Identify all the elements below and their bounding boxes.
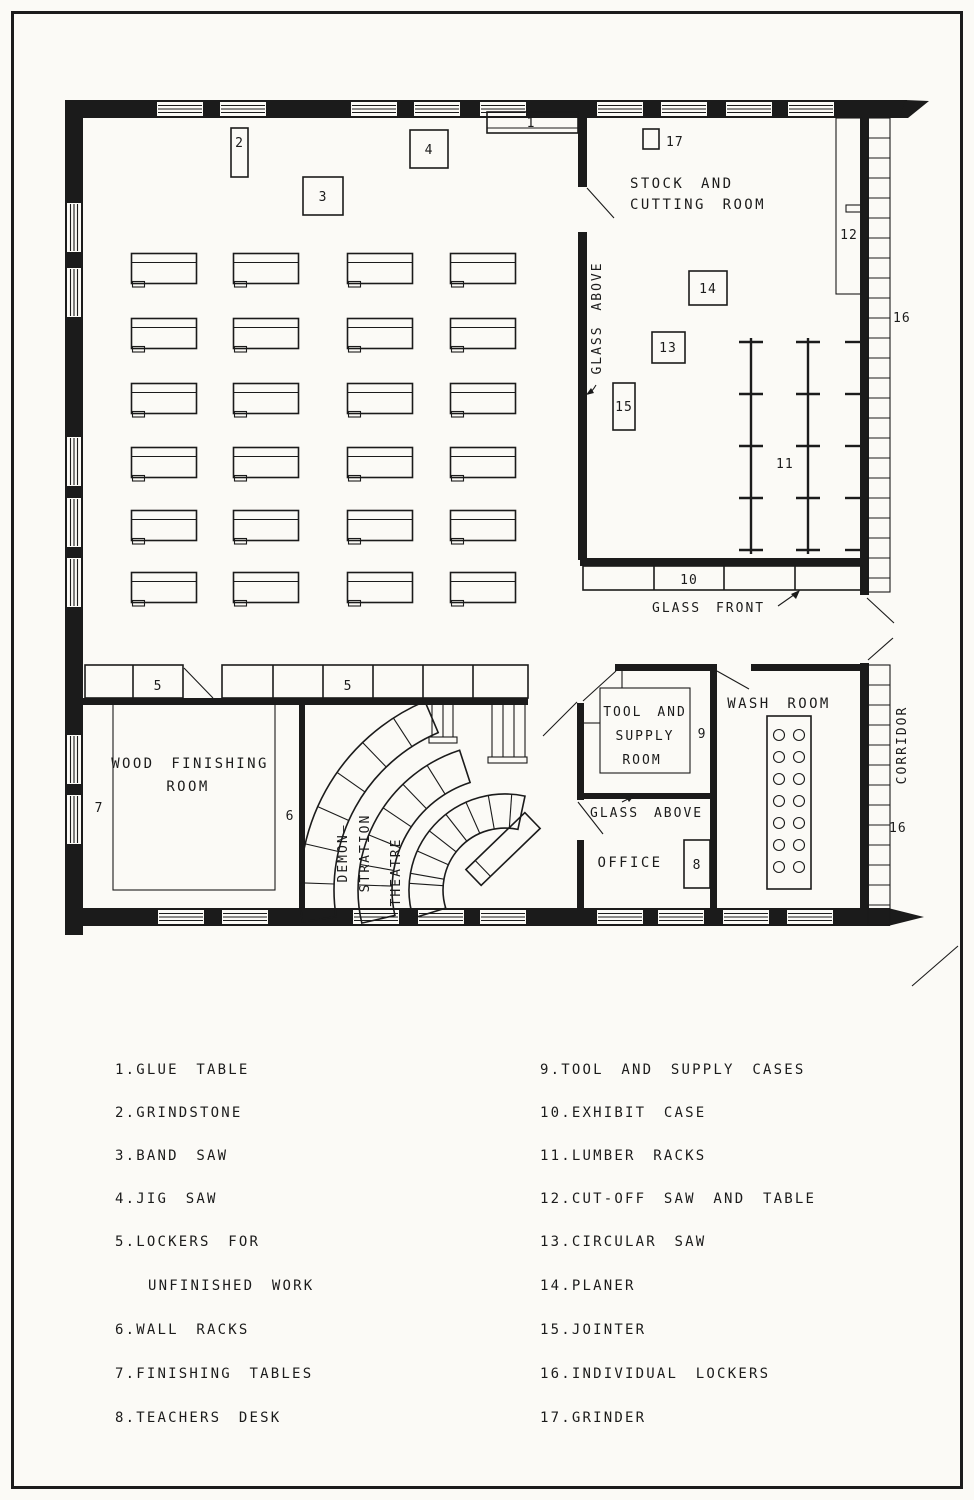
marker-5b: 5 (344, 679, 353, 694)
stock-partition-upper (578, 118, 587, 187)
stock-room-bottom-wall (580, 558, 866, 566)
marker-5a: 5 (154, 679, 163, 694)
cut-off-saw-table: 12 (836, 118, 862, 294)
workbench (132, 573, 197, 607)
marker-15: 15 (615, 400, 633, 415)
glass-above-vertical-label: GLASS ABOVE (590, 261, 605, 374)
workbench (348, 573, 413, 607)
stock-cutting-room: 17 STOCK AND CUTTING ROOM 14 13 15 12 (583, 118, 862, 616)
workbench (234, 254, 299, 288)
legend-item: 5.LOCKERS FOR (115, 1234, 260, 1250)
workbench (234, 511, 299, 545)
legend-item: 2.GRINDSTONE (115, 1105, 243, 1121)
workbench (132, 511, 197, 545)
marker-1: 1 (527, 116, 536, 131)
demonstration-theatre: DEMON— STRATION THEATRE (300, 701, 540, 923)
tool-room-left-wall (577, 703, 584, 800)
marker-14: 14 (699, 282, 717, 297)
grinder: 17 (643, 129, 684, 150)
teachers-desk: 8 (684, 840, 710, 888)
door-swing (184, 668, 213, 698)
marker-11: 11 (776, 457, 794, 472)
top-wall-taper (900, 100, 929, 118)
jig-saw: 4 (410, 130, 448, 168)
marker-8: 8 (693, 858, 702, 873)
legend-item: 9.TOOL AND SUPPLY CASES (540, 1062, 805, 1078)
wood-finishing-label-2: ROOM (166, 779, 209, 795)
marker-16b: 16 (889, 821, 907, 836)
marker-2: 2 (235, 136, 244, 151)
tool-label-1: TOOL AND (603, 705, 687, 720)
shop-theatre-divider-wall (83, 698, 528, 705)
theatre-label: THEATRE (389, 838, 404, 907)
individual-lockers-bottom: 16 CORRIDOR (868, 665, 910, 925)
marker-17: 17 (666, 135, 684, 150)
legend-item: 13.CIRCULAR SAW (540, 1234, 706, 1250)
stock-partition-glass-above (578, 232, 587, 560)
legend: 1.GLUE TABLE 2.GRINDSTONE 3.BAND SAW 4.J… (115, 1062, 816, 1426)
marker-16a: 16 (893, 311, 911, 326)
door-swing (543, 702, 577, 736)
marker-13: 13 (659, 341, 677, 356)
workbench (132, 384, 197, 418)
jointer: 15 (613, 383, 635, 430)
workbench (234, 384, 299, 418)
workbench (234, 319, 299, 353)
legend-item: 17.GRINDER (540, 1410, 646, 1426)
marker-6: 6 (286, 809, 295, 824)
door-swing (868, 638, 893, 660)
workbench (348, 511, 413, 545)
office-left-wall (577, 840, 584, 908)
finishing-tables (113, 703, 275, 890)
tool-label-2: SUPPLY (616, 729, 675, 744)
left-wall-windows (67, 203, 81, 844)
wash-room: WASH ROOM (727, 696, 830, 889)
tier-seat-dividers (300, 718, 512, 886)
legend-item: 12.CUT-OFF SAW AND TABLE (540, 1191, 816, 1207)
marker-12: 12 (840, 228, 858, 243)
tool-office-divider (583, 793, 713, 799)
demonstration-bench (466, 813, 540, 886)
legend-item: 16.INDIVIDUAL LOCKERS (540, 1366, 770, 1382)
door-swing (587, 188, 614, 218)
legend-item: 14.PLANER (540, 1278, 636, 1294)
glass-above-wall-annotation: GLASS ABOVE (586, 261, 605, 395)
grindstone: 2 (231, 128, 248, 177)
legend-item: 10.EXHIBIT CASE (540, 1105, 706, 1121)
office: GLASS ABOVE OFFICE 8 (590, 796, 710, 888)
wash-room-top-wall (751, 664, 863, 671)
sheet-border (13, 13, 962, 1488)
workbench (348, 254, 413, 288)
theatre-tiers (300, 701, 525, 923)
workbench (451, 319, 516, 353)
marker-9: 9 (698, 727, 707, 742)
workbench (451, 511, 516, 545)
lockers-unfinished-right: 5 (222, 665, 528, 698)
workbench (451, 384, 516, 418)
office-label: OFFICE (598, 855, 663, 871)
demonstration-label-2: STRATION (358, 814, 373, 893)
workbench (348, 319, 413, 353)
sink-unit (767, 716, 811, 889)
workbench (234, 448, 299, 482)
door-swing (717, 671, 749, 689)
workbench (451, 254, 516, 288)
exhibit-case: 10 (583, 566, 862, 590)
circular-saw: 13 (652, 332, 685, 363)
band-saw: 3 (303, 177, 343, 215)
workbench (451, 448, 516, 482)
marker-4: 4 (425, 143, 434, 158)
theatre-stairs (429, 705, 527, 763)
legend-item: 4.JIG SAW (115, 1191, 218, 1207)
marker-7: 7 (95, 801, 104, 816)
legend-item: 6.WALL RACKS (115, 1322, 250, 1338)
lockers-unfinished-left: 5 (85, 665, 183, 698)
tool-room-top-wall (615, 664, 715, 671)
legend-item: 11.LUMBER RACKS (540, 1148, 706, 1164)
individual-lockers-top: 16 (868, 118, 911, 592)
marker-3: 3 (319, 190, 328, 205)
stock-cutting-label-2: CUTTING ROOM (630, 197, 766, 213)
demonstration-label-1: DEMON— (336, 824, 351, 883)
glass-front-label: GLASS FRONT (652, 601, 765, 616)
wood-finishing-room: WOOD FINISHING ROOM 7 6 (95, 703, 295, 890)
planer: 14 (689, 271, 727, 305)
workbench (348, 448, 413, 482)
bottom-wall-windows (158, 910, 833, 924)
drawing-sheet: 1 2 3 4 17 STOCK AND CUTTING ROOM 14 13 … (0, 0, 974, 1500)
outer-walls (65, 100, 929, 935)
workbench (132, 319, 197, 353)
tool-label-3: ROOM (622, 753, 661, 768)
workbench (451, 573, 516, 607)
corridor-break-line (912, 946, 958, 986)
legend-item: 1.GLUE TABLE (115, 1062, 250, 1078)
workbench (234, 573, 299, 607)
tool-supply-room: TOOL AND SUPPLY ROOM 9 (584, 671, 706, 773)
legend-item: 3.BAND SAW (115, 1148, 228, 1164)
top-wall-windows (157, 102, 834, 116)
legend-item: 8.TEACHERS DESK (115, 1410, 281, 1426)
legend-item: 15.JOINTER (540, 1322, 646, 1338)
legend-item-continuation: UNFINISHED WORK (148, 1278, 314, 1294)
door-swing (867, 598, 894, 623)
workbench-grid (132, 254, 516, 607)
workbench (348, 384, 413, 418)
marker-10: 10 (680, 573, 698, 588)
lumber-racks: 11 (739, 338, 861, 554)
bottom-wall-taper (888, 908, 924, 926)
glass-front-annotation: GLASS FRONT (652, 590, 800, 616)
workbench (132, 448, 197, 482)
wood-finishing-label-1: WOOD FINISHING (111, 756, 269, 772)
corridor-label: CORRIDOR (895, 706, 910, 785)
stock-cutting-label-1: STOCK AND (630, 176, 733, 192)
workbench (132, 254, 197, 288)
tool-wash-divider-wall (710, 664, 717, 908)
floor-plan: 1 2 3 4 17 STOCK AND CUTTING ROOM 14 13 … (0, 0, 974, 1500)
glass-above-office-label: GLASS ABOVE (590, 806, 703, 821)
wash-room-label: WASH ROOM (727, 696, 830, 712)
legend-item: 7.FINISHING TABLES (115, 1366, 313, 1382)
arrowhead (791, 590, 800, 599)
